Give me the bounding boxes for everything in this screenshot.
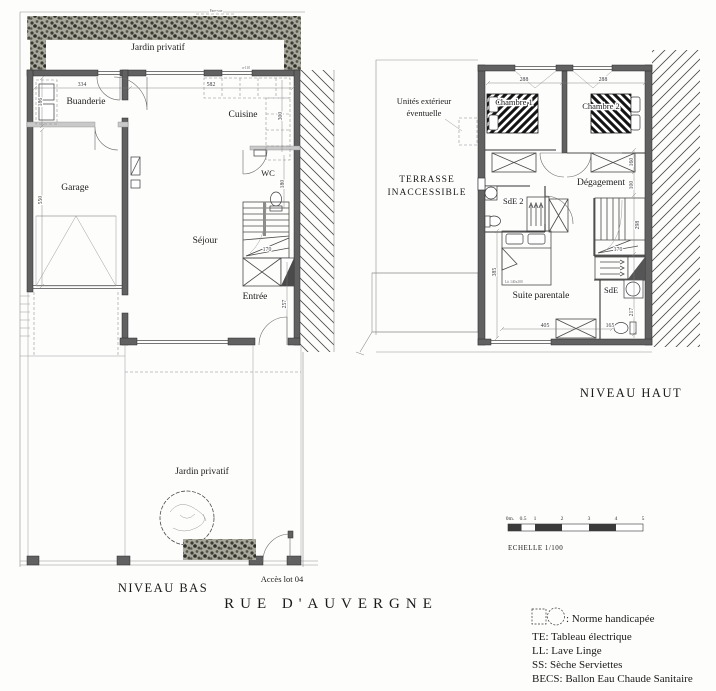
floorplan-sheet: Pare-vue Jardin privatif a-110 bbox=[0, 0, 716, 691]
svg-text:217: 217 bbox=[629, 308, 635, 317]
svg-text:160: 160 bbox=[629, 158, 635, 167]
hedge-right bbox=[284, 38, 301, 70]
legend-ll: LL: Lave Linge bbox=[532, 645, 602, 657]
label-sde: SdE bbox=[604, 285, 618, 295]
jardin-top-label: Jardin privatif bbox=[131, 42, 185, 53]
plan-niveau-bas: Pare-vue Jardin privatif a-110 bbox=[20, 9, 334, 595]
scale-tick: 4 bbox=[615, 516, 618, 522]
suite-closet bbox=[556, 319, 596, 338]
understair-closet bbox=[243, 258, 294, 286]
label-garage: Garage bbox=[61, 183, 88, 193]
niveau-haut-title: NIVEAU HAUT bbox=[580, 386, 682, 400]
label-degagement: Dégagement bbox=[577, 178, 625, 188]
svg-text:405: 405 bbox=[541, 323, 550, 329]
label-buanderie: Buanderie bbox=[66, 97, 105, 107]
svg-text:100: 100 bbox=[629, 181, 635, 190]
towel-dryer bbox=[595, 257, 645, 279]
plan-niveau-haut: TERRASSE INACCESSIBLE Unités extérieur é… bbox=[356, 50, 700, 400]
acces-label: Accès lot 04 bbox=[261, 574, 304, 584]
svg-text:298: 298 bbox=[635, 221, 641, 230]
scale-tick: 0.5 bbox=[520, 516, 527, 522]
window-label: a-110 bbox=[242, 66, 250, 70]
label-entree: Entrée bbox=[243, 292, 268, 302]
street-title: RUE D'AUVERGNE bbox=[224, 596, 438, 612]
label-cuisine: Cuisine bbox=[228, 110, 257, 120]
terrasse-label-2: INACCESSIBLE bbox=[387, 188, 466, 198]
fence-label: Pare-vue bbox=[210, 9, 223, 13]
wardrobes bbox=[492, 153, 635, 172]
sde-fixtures bbox=[614, 280, 643, 334]
svg-text:257: 257 bbox=[282, 300, 288, 309]
window-sejour bbox=[137, 341, 228, 344]
plot-boundary bbox=[20, 12, 318, 567]
legend-norme: : Norme handicapée bbox=[566, 613, 655, 625]
jardin-bottom-label: Jardin privatif bbox=[175, 466, 229, 477]
handicap-circle-icon bbox=[548, 608, 565, 625]
hedge-top bbox=[27, 16, 301, 40]
dim-stair-bas: 170 bbox=[263, 247, 272, 253]
svg-text:186: 186 bbox=[38, 98, 44, 107]
scale-tick: 2 bbox=[561, 516, 564, 522]
svg-text:334: 334 bbox=[78, 82, 87, 88]
label-chambre2: Chambre 2 bbox=[582, 101, 620, 111]
legend-becs: BECS: Ballon Eau Chaude Sanitaire bbox=[532, 673, 693, 685]
unites-unit-box bbox=[459, 118, 477, 145]
walls-bas: a-110 bbox=[27, 66, 300, 345]
neighbour-hatch-left-plan bbox=[300, 70, 334, 352]
label-sde2: SdE 2 bbox=[503, 196, 524, 206]
tree bbox=[160, 491, 214, 545]
garden-gate bbox=[263, 534, 290, 561]
svg-text:385: 385 bbox=[492, 268, 498, 277]
svg-text:550: 550 bbox=[38, 196, 44, 205]
label-chambre1: Chambre 1 bbox=[495, 97, 533, 107]
svg-text:288: 288 bbox=[520, 77, 529, 83]
floorplan-drawing: Pare-vue Jardin privatif a-110 bbox=[0, 0, 716, 691]
unites-label-2: éventuelle bbox=[407, 108, 442, 118]
terrasse-label-1: TERRASSE bbox=[399, 175, 455, 185]
scale-tick: 1 bbox=[534, 516, 537, 522]
hedge-bottom bbox=[183, 539, 256, 560]
svg-text:180: 180 bbox=[280, 180, 286, 189]
unites-leader bbox=[445, 119, 462, 131]
garage-door bbox=[36, 216, 116, 286]
doors-haut bbox=[540, 153, 591, 224]
window-suite bbox=[491, 341, 551, 344]
svg-text:165: 165 bbox=[606, 323, 615, 329]
label-suite: Suite parentale bbox=[513, 291, 570, 301]
dim-stair-haut: 170 bbox=[614, 247, 623, 253]
label-sejour: Séjour bbox=[193, 236, 219, 246]
legend-ss: SS: Sèche Serviettes bbox=[532, 659, 622, 671]
hedge-left bbox=[30, 38, 46, 72]
svg-text:300: 300 bbox=[278, 112, 284, 121]
unites-label-1: Unités extérieur bbox=[397, 96, 452, 106]
legend-te: TE: Tableau électrique bbox=[532, 631, 632, 643]
pergola-strip bbox=[372, 273, 478, 332]
legend: : Norme handicapée TE: Tableau électriqu… bbox=[532, 608, 693, 685]
scale-tick: 0m. bbox=[506, 516, 515, 522]
svg-text:288: 288 bbox=[599, 77, 608, 83]
label-wc: WC bbox=[261, 168, 275, 178]
niveau-bas-title: NIVEAU BAS bbox=[118, 581, 208, 595]
scale-label: ECHELLE 1/100 bbox=[508, 544, 563, 552]
scale-tick: 3 bbox=[588, 516, 591, 522]
svg-text:582: 582 bbox=[207, 82, 216, 88]
te-panel bbox=[131, 157, 140, 188]
neighbour-hatch-right-plan bbox=[652, 50, 700, 347]
bed-suite: Lit 140x200 bbox=[502, 231, 551, 285]
scale-tick: 5 bbox=[642, 516, 645, 522]
handicap-square-icon bbox=[532, 609, 546, 624]
scale-bar: 0m. 0.5 1 2 3 4 5 ECHELLE 1/100 bbox=[506, 516, 645, 552]
bed-size-label: Lit 140x200 bbox=[505, 280, 523, 284]
garden-bas: Jardin privatif Accès lot 04 bbox=[20, 292, 304, 584]
bed-chambre2 bbox=[591, 94, 640, 133]
